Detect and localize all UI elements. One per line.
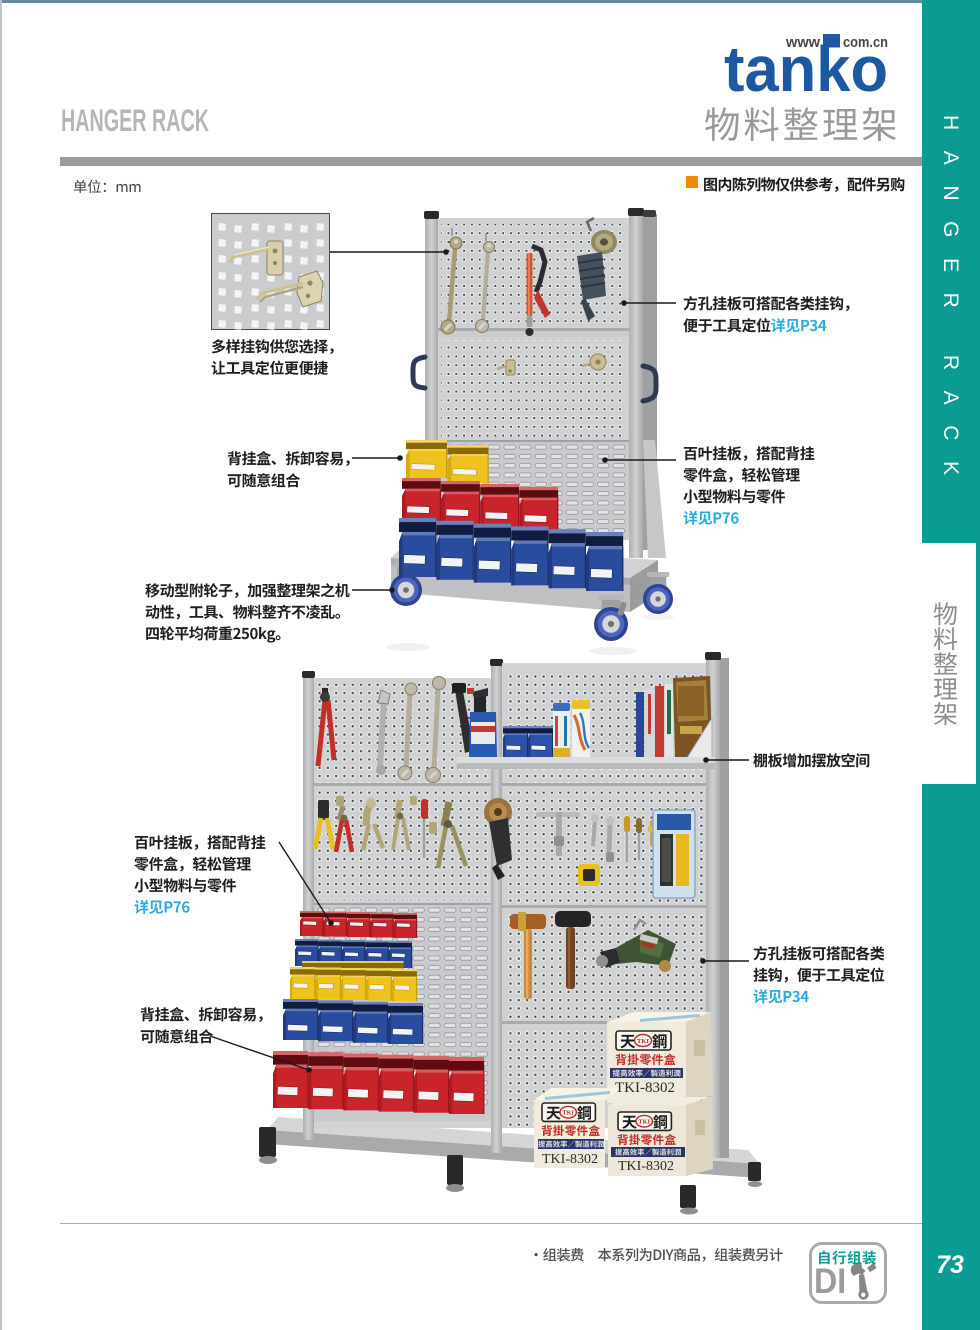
- svg-text:TKI: TKI: [562, 1110, 574, 1117]
- svg-text:TKI-8302: TKI-8302: [542, 1152, 598, 1167]
- svg-text:TKI-8302: TKI-8302: [615, 1080, 675, 1096]
- svg-text:TKI: TKI: [637, 1038, 649, 1045]
- svg-text:TKI-8302: TKI-8302: [618, 1159, 674, 1174]
- svg-text:TKI: TKI: [638, 1119, 650, 1126]
